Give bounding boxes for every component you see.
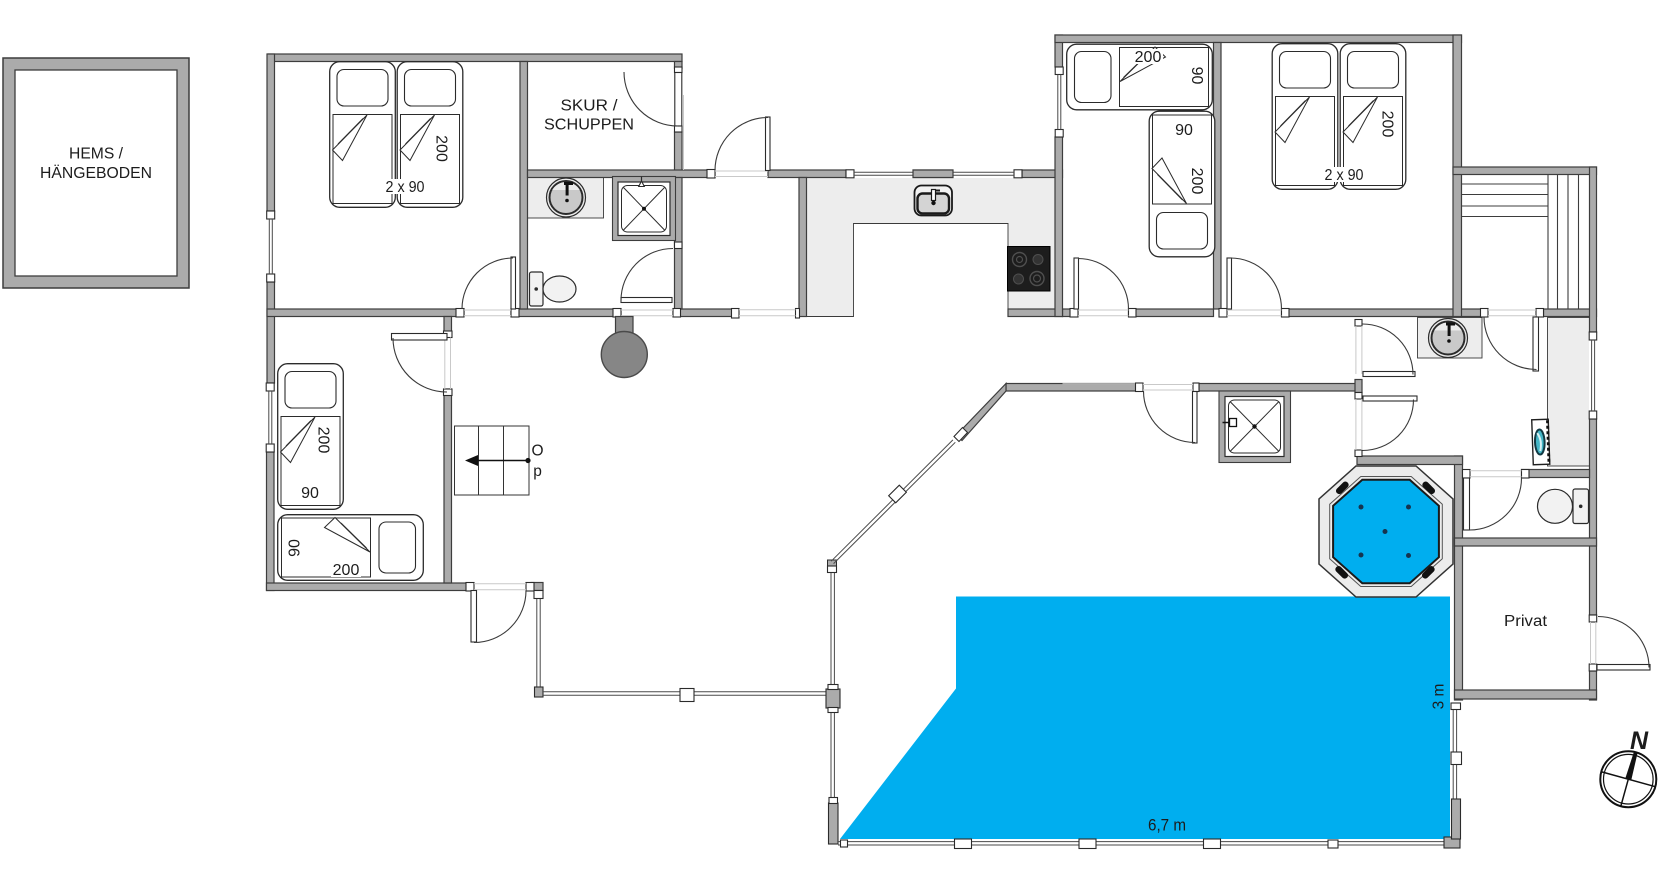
svg-text:SKUR /: SKUR / [561,97,619,114]
svg-text:200: 200 [1188,168,1205,195]
svg-text:6,7 m: 6,7 m [1148,815,1186,834]
svg-text:200: 200 [432,135,449,162]
svg-text:O: O [531,442,543,459]
svg-text:90: 90 [301,485,319,502]
svg-text:Privat: Privat [1504,613,1548,630]
svg-text:90: 90 [1175,122,1193,139]
svg-text:200: 200 [1378,111,1395,138]
svg-text:HÄNGEBODEN: HÄNGEBODEN [40,165,152,182]
svg-text:200: 200 [314,427,331,454]
svg-text:SCHUPPEN: SCHUPPEN [544,116,634,133]
svg-text:2 x 90: 2 x 90 [1325,167,1364,184]
svg-text:3 m: 3 m [1430,684,1447,710]
svg-text:90: 90 [287,539,304,557]
svg-text:200: 200 [333,562,360,579]
svg-text:200: 200 [1135,49,1162,66]
svg-text:HEMS /: HEMS / [69,145,124,162]
svg-text:N: N [1630,727,1649,755]
svg-text:p: p [533,463,542,480]
svg-text:90: 90 [1188,67,1205,85]
svg-text:2 x 90: 2 x 90 [386,179,425,196]
